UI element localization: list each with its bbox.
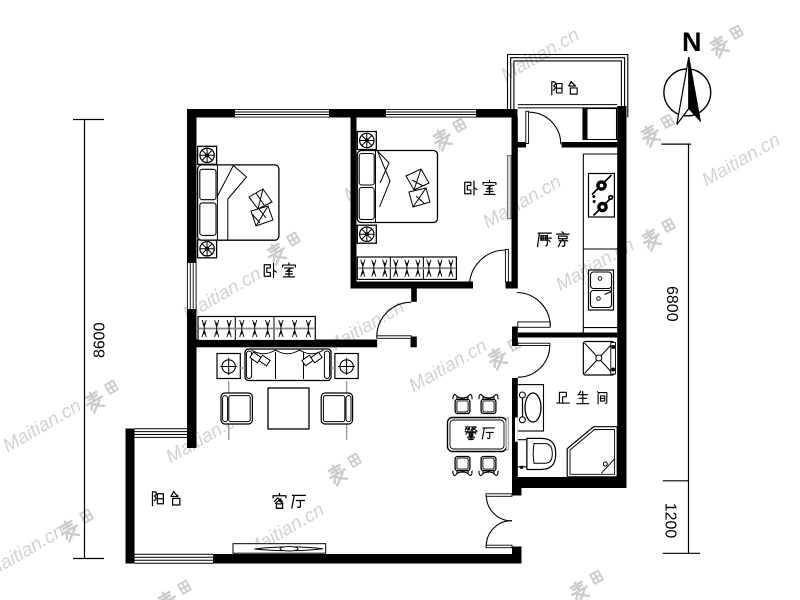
svg-text:6800: 6800 xyxy=(663,286,680,322)
svg-text:8600: 8600 xyxy=(91,322,108,358)
svg-text:N: N xyxy=(682,27,702,57)
svg-text:1200: 1200 xyxy=(661,503,678,539)
